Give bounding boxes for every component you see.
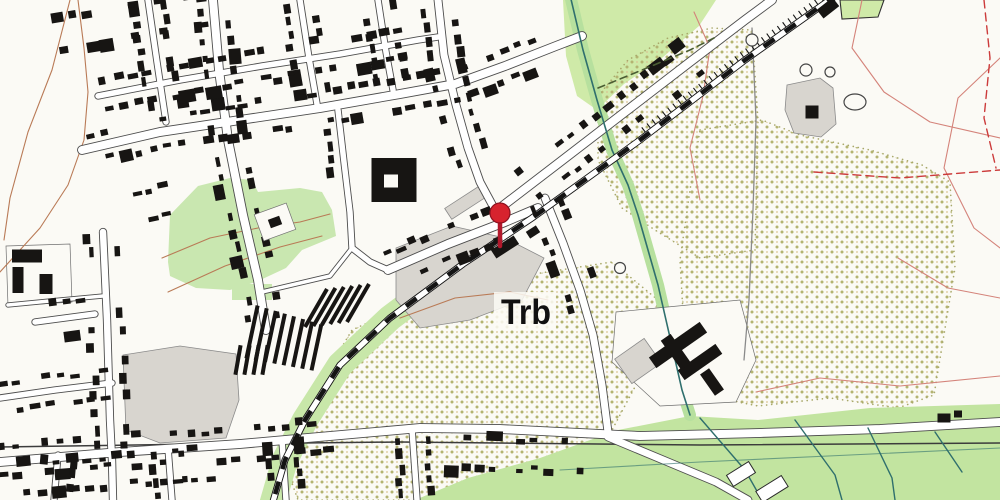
- factory-notch: [384, 175, 398, 188]
- map-pin-head: [490, 203, 510, 223]
- field-top-right: [840, 0, 884, 19]
- station-halt-label: Trb: [501, 293, 551, 332]
- map-viewport[interactable]: Trb: [0, 0, 1000, 500]
- map-canvas: Trb: [0, 0, 1000, 500]
